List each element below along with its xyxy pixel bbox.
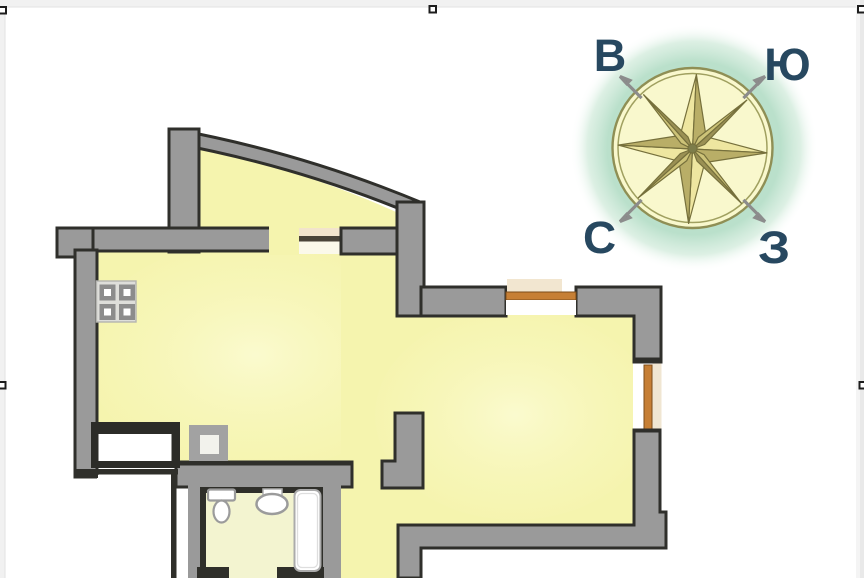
svg-text:Ю: Ю: [764, 39, 810, 90]
svg-text:В: В: [594, 30, 627, 81]
svg-text:С: С: [583, 212, 616, 262]
svg-text:З: З: [758, 223, 790, 273]
